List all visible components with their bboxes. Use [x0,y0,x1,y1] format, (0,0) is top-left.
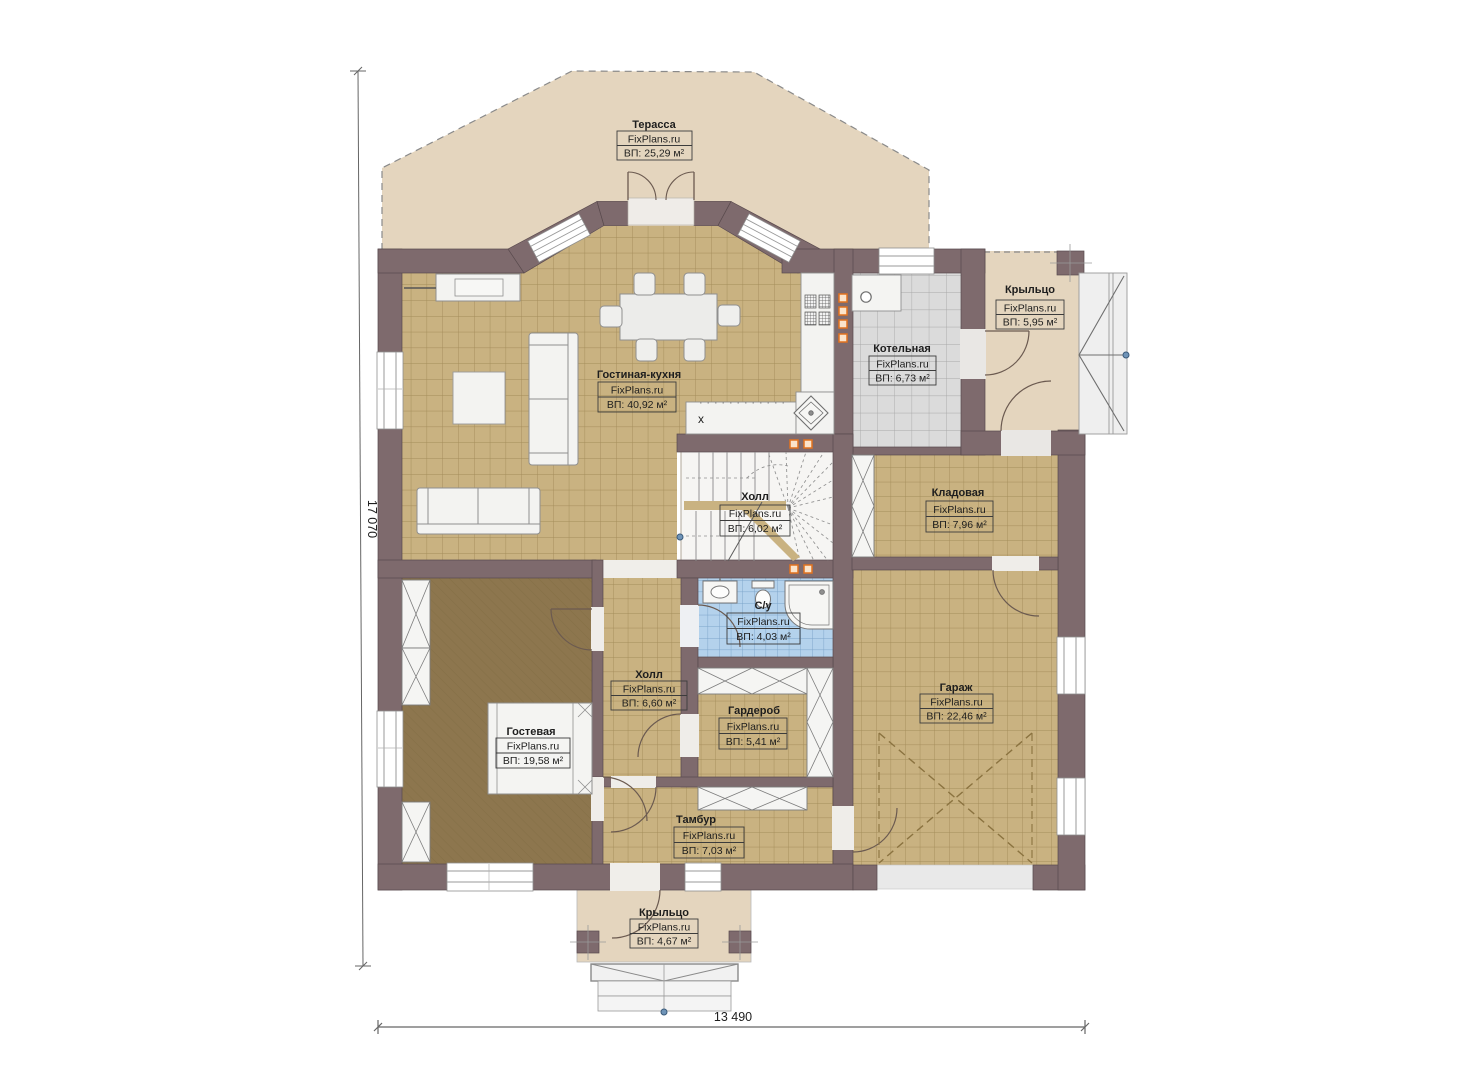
svg-text:ВП: 25,29 м²: ВП: 25,29 м² [624,148,685,160]
svg-text:FixPlans.ru: FixPlans.ru [930,697,983,709]
svg-text:ВП: 4,67 м²: ВП: 4,67 м² [637,936,692,948]
svg-text:ВП: 40,92 м²: ВП: 40,92 м² [607,399,668,411]
svg-text:x: x [698,412,704,426]
svg-text:FixPlans.ru: FixPlans.ru [683,830,736,842]
svg-text:FixPlans.ru: FixPlans.ru [623,684,676,696]
svg-text:Гараж: Гараж [940,682,973,694]
svg-text:17 070: 17 070 [365,500,379,538]
svg-text:Котельная: Котельная [873,343,931,355]
svg-text:Кладовая: Кладовая [932,487,985,499]
svg-text:Терасса: Терасса [632,119,676,131]
svg-text:FixPlans.ru: FixPlans.ru [628,134,681,146]
svg-text:FixPlans.ru: FixPlans.ru [876,359,929,371]
svg-text:ВП: 19,58 м²: ВП: 19,58 м² [503,755,564,767]
svg-text:ВП: 6,02 м²: ВП: 6,02 м² [728,523,783,535]
svg-text:Крыльцо: Крыльцо [639,907,689,919]
svg-text:Холл: Холл [741,491,769,503]
svg-text:ВП: 7,96 м²: ВП: 7,96 м² [932,519,987,531]
svg-text:ВП: 5,95 м²: ВП: 5,95 м² [1003,317,1058,329]
svg-text:ВП: 22,46 м²: ВП: 22,46 м² [926,711,987,723]
svg-text:FixPlans.ru: FixPlans.ru [507,741,560,753]
svg-text:FixPlans.ru: FixPlans.ru [729,508,782,520]
svg-text:Тамбур: Тамбур [676,814,716,826]
svg-text:FixPlans.ru: FixPlans.ru [638,922,691,934]
svg-text:Гардероб: Гардероб [728,705,780,717]
svg-text:FixPlans.ru: FixPlans.ru [727,721,780,733]
svg-text:ВП: 4,03 м²: ВП: 4,03 м² [736,631,791,643]
svg-text:FixPlans.ru: FixPlans.ru [611,385,664,397]
svg-text:Холл: Холл [635,669,663,681]
svg-text:FixPlans.ru: FixPlans.ru [737,616,790,628]
svg-text:Гостиная-кухня: Гостиная-кухня [597,369,681,381]
svg-text:ВП: 6,60 м²: ВП: 6,60 м² [622,698,677,710]
svg-text:13 490: 13 490 [714,1010,752,1024]
svg-text:ВП: 7,03 м²: ВП: 7,03 м² [682,845,737,857]
svg-text:ВП: 5,41 м²: ВП: 5,41 м² [726,736,781,748]
svg-text:FixPlans.ru: FixPlans.ru [933,504,986,516]
svg-text:С/у: С/у [754,600,772,612]
svg-text:Крыльцо: Крыльцо [1005,284,1055,296]
svg-text:FixPlans.ru: FixPlans.ru [1004,303,1057,315]
svg-text:Гостевая: Гостевая [506,726,555,738]
svg-text:ВП: 6,73 м²: ВП: 6,73 м² [875,373,930,385]
